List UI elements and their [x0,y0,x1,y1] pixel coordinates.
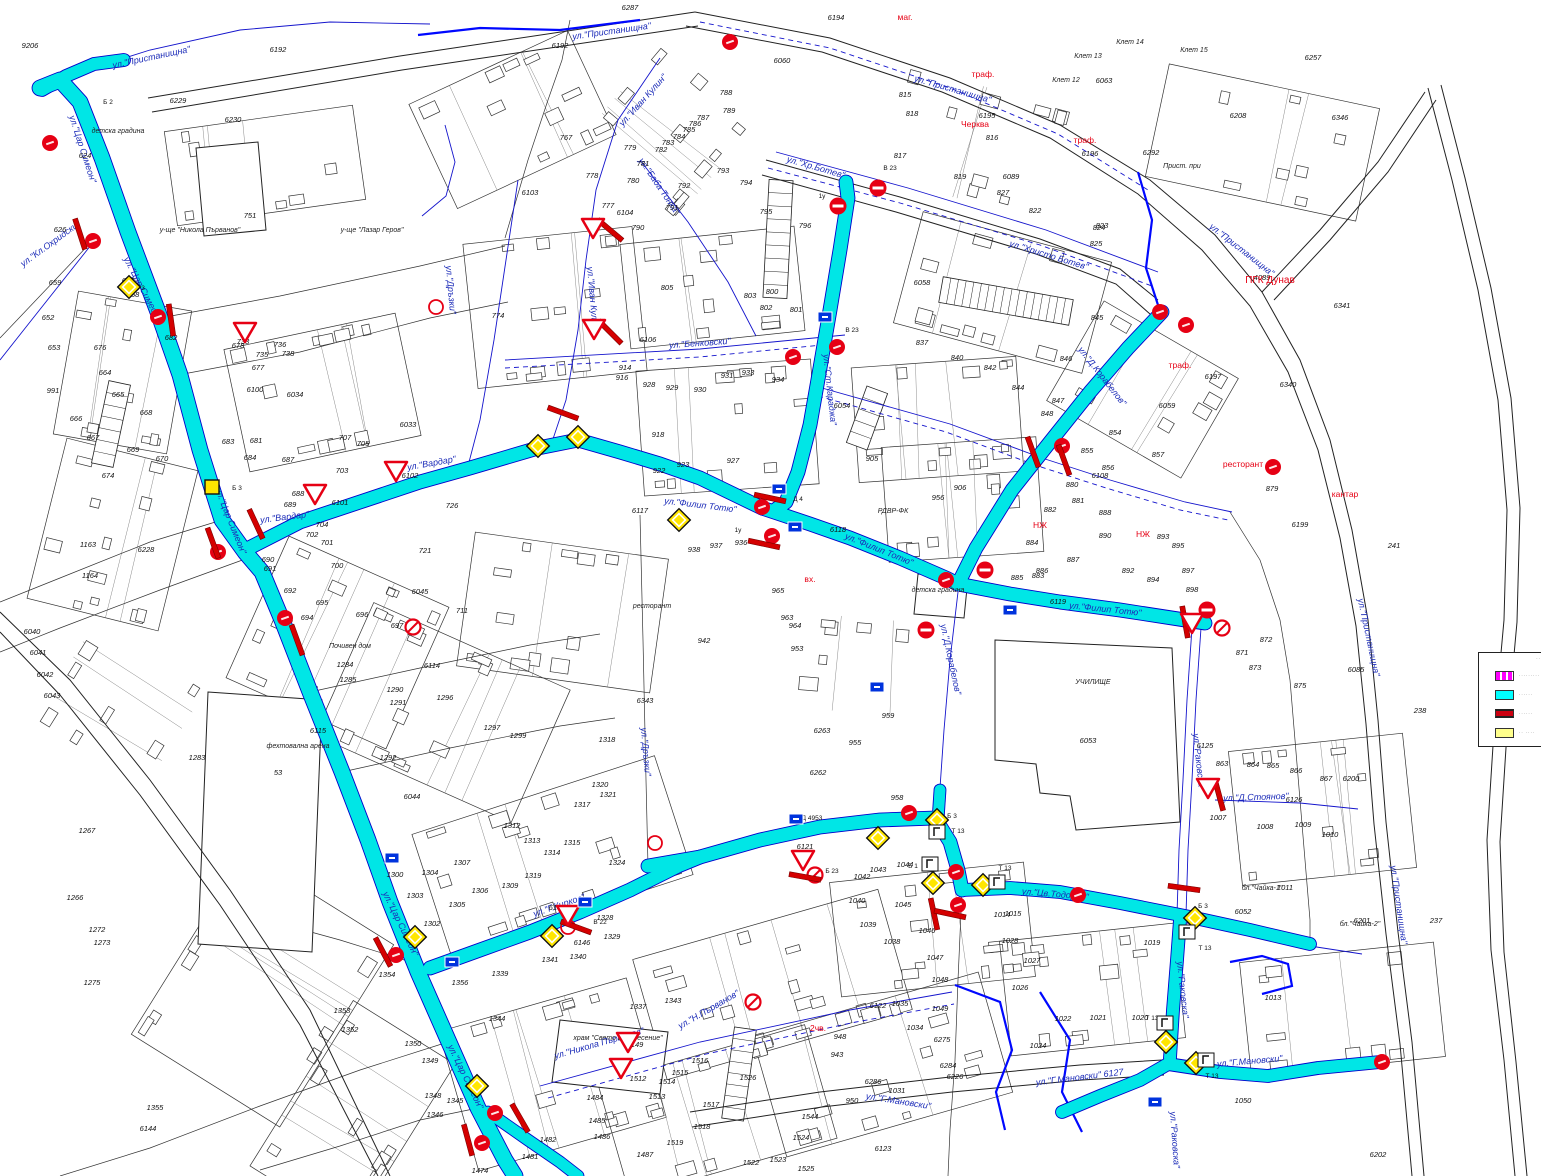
sign-code-label: 1у [735,527,743,534]
parcel-number: 6033 [400,420,418,429]
building-label: Клет 13 [1074,53,1102,60]
traffic-sign-ring [429,300,443,314]
traffic-sign-blue [445,957,459,967]
parcel-number: 780 [627,176,640,185]
building-label: Клет 15 [1180,47,1208,54]
parcel-number: 683 [222,437,235,446]
parcel-number: 1304 [422,868,439,877]
red-annotation: маг. [898,12,913,22]
street-axis [1177,628,1192,915]
parcel-number: 6263 [814,726,832,735]
parcel-number: 6340 [1280,380,1298,389]
parcel-number: 1348 [425,1091,443,1100]
traffic-sign-sq [205,480,219,494]
parcel-number: 818 [906,109,919,118]
parcel-number: 1544 [802,1112,819,1121]
traffic-sign-slash [1215,621,1230,636]
parcel-number: 6346 [1332,113,1350,122]
parcel-number: 1317 [574,800,592,809]
street-label: ул."Христо Ботев" [1007,238,1090,272]
traffic-sign-dot [722,34,738,50]
parcel-number: 1525 [798,1164,816,1173]
sign-code-label: Т 13 [998,865,1011,872]
parcel-number: 1324 [609,858,626,867]
map-legend: ·· ··· ······················· ···· [1478,652,1541,747]
parcel-number: 800 [766,287,779,296]
sign-code-label: Б 23 [825,868,839,875]
legend-swatch-magenta-striped [1495,671,1514,681]
parcel-number: 873 [1249,663,1262,672]
map-viewport[interactable]: ул."Пристанищна"ул."Пристанищна"ул."Прис… [0,0,1541,1176]
building-label: фехтовална арена [266,743,329,750]
traffic-sign-dot [85,233,101,249]
parcel-number: 854 [1109,428,1122,437]
sign-code-label: Б 3 [232,485,242,492]
parcel-number: 1341 [542,955,559,964]
parcel-number: 721 [419,546,432,555]
building-label: Почивен дом [329,642,371,650]
parcel-number: 6043 [44,691,62,700]
sign-code-label: Б 3 [947,813,957,820]
parcel-block [35,623,205,788]
parcel-number: 702 [306,530,319,539]
parcel-number: 936 [735,538,748,547]
parcel-boundary [0,238,95,338]
parcel-number: 929 [666,383,679,392]
traffic-sign-dot [948,864,964,880]
parcel-number: 674 [102,471,115,480]
red-annotation: ресторант [1223,459,1263,469]
traffic-sign-dot [785,349,801,365]
parcel-number: 906 [954,483,967,492]
building-label: детска градина [92,127,145,135]
parcel-number: 942 [698,636,711,645]
parcel-number: 6059 [1159,401,1177,410]
parcel-number: 872 [1260,635,1273,644]
parcel-number: 1526 [740,1073,758,1082]
traffic-sign-noentry [870,180,887,197]
parcel-number: 1302 [424,919,442,928]
parcel-number: 6108 [1092,471,1110,480]
parcel-number: 1512 [630,1074,648,1083]
traffic-sign-blue [1148,1097,1162,1107]
parcel-number: 6275 [934,1035,952,1044]
parcel-number: 931 [721,371,734,380]
traffic-sign-dot [901,805,917,821]
parcel-number: 695 [316,598,329,607]
parcel-number: 670 [156,454,169,463]
parcel-number: 6100 [247,385,265,394]
parcel-number: 930 [694,385,707,394]
parcel-number: 704 [316,520,329,529]
parcel-number: 1313 [524,836,542,845]
parcel-number: 777 [602,201,615,210]
parcel-number: 1524 [793,1133,810,1142]
traffic-sign-blue [772,484,786,494]
sign-code-label: Б 3 [1198,903,1208,910]
parcel-number: 1291 [390,698,407,707]
parcel-number: 1518 [694,1122,712,1131]
parcel-number: 6144 [140,1124,157,1133]
parcel-number: 923 [677,460,690,469]
traffic-sign-box [989,875,1005,889]
legend-title: ·· ··· [1495,656,1541,666]
parcel-number: 6286 [865,1077,883,1086]
traffic-sign-bar [1168,883,1200,892]
parcel-number: 837 [916,338,929,347]
sign-code-label: Т 13 [1198,945,1211,952]
parcel-number: 964 [789,621,802,630]
parcel-number: 665 [112,390,125,399]
parcel-block [797,613,910,717]
parcel-number: 1481 [522,1152,539,1161]
parcel-boundary [342,718,615,772]
parcel-number: 726 [446,501,459,510]
parcel-number: 6106 [640,335,658,344]
traffic-sign-dot [1374,1054,1390,1070]
parcel-number: 1299 [510,731,528,740]
traffic-sign-dot [150,309,166,325]
parcel-number: 881 [1072,496,1085,505]
traffic-sign-slash [406,620,421,635]
traffic-sign-dia [867,827,890,850]
street-axis [1310,946,1362,954]
parcel-number: 819 [954,172,967,181]
parcel-number: 1303 [407,891,425,900]
parcel-boundary [260,1108,478,1170]
cadastral-map-canvas[interactable]: ул."Пристанищна"ул."Пристанищна"ул."Прис… [0,0,1541,1176]
building-label: УЧИЛИЩЕ [1074,679,1110,686]
parcel-number: 792 [678,181,691,190]
parcel-number: 882 [1044,505,1057,514]
utility-line [955,985,1012,1130]
parcel-number: 735 [256,350,269,359]
parcel-number: 6202 [1370,1150,1388,1159]
parcel-number: 816 [986,133,999,142]
parcel-number: 700 [331,561,344,570]
red-annotation: Черква [961,119,989,129]
traffic-sign-ring [648,836,662,850]
parcel-number: 1306 [472,886,490,895]
parcel-number: 796 [799,221,812,230]
traffic-sign-dot [1152,304,1168,320]
parcel-number: 937 [710,541,723,550]
traffic-sign-tri [583,320,605,339]
parcel-number: 6262 [810,768,828,777]
parcel-number: 6053 [1080,736,1098,745]
red-annotation: НЖ [1136,529,1150,539]
parcel-number: 6122 [870,1001,888,1010]
parcel-number: 893 [1157,532,1170,541]
parcel-number: 705 [357,439,370,448]
parcel-number: 1031 [889,1086,906,1095]
parcel-number: 1048 [932,975,950,984]
parcel-number: 791 [666,203,679,212]
parcel-number: 1266 [67,893,85,902]
parcel-number: 943 [831,1050,844,1059]
parcel-number: 6104 [617,208,634,217]
parcel-number: 6121 [797,842,814,851]
traffic-sign-dot [487,1105,503,1121]
parcel-number: 1034 [907,1023,924,1032]
traffic-sign-box [1157,1016,1173,1030]
parcel-number: 1272 [89,925,107,934]
parcel-number: 6229 [170,96,188,105]
parcel-number: 6208 [1230,111,1248,120]
parcel-number: 6226 [947,1072,965,1081]
street-axis [700,22,1148,190]
building-label: Клет 14 [1116,39,1144,46]
parcel-number: 1522 [743,1158,761,1167]
traffic-sign-dot [1070,887,1086,903]
parcel-number: 6118 [830,525,847,534]
building-label: бл."Чайка-1" [1242,884,1283,892]
parcel-number: 6041 [30,648,47,657]
traffic-sign-blue [385,853,399,863]
parcel-number: 6103 [522,188,540,197]
traffic-sign-blue [578,897,592,907]
parcel-number: 793 [717,166,730,175]
parcel-number: 624 [79,151,92,160]
traffic-sign-bar [547,405,579,421]
parcel-number: 1349 [422,1056,440,1065]
parcel-number: 751 [244,211,257,220]
parcel-number: 885 [1011,573,1024,582]
parcel-number: 864 [1247,760,1260,769]
parcel-number: 6125 [1197,741,1215,750]
parcel-block [409,30,616,208]
parcel-number: 1353 [334,1006,352,1015]
parcel-number: 1350 [405,1039,423,1048]
parcel-number: 897 [1182,566,1195,575]
parcel-number: 688 [292,489,305,498]
legend-label: ········· [1519,673,1540,678]
traffic-sign-dot [277,610,293,626]
traffic-sign-box [929,825,945,839]
parcel-number: 863 [1216,759,1229,768]
parcel-number: 847 [1052,396,1065,405]
street-label: ул."Пристанищна" [1388,864,1409,946]
parcel-block [164,105,365,226]
parcel-number: 6287 [622,3,640,12]
parcel-number: 6192 [552,41,570,50]
parcel-number: 1320 [592,780,610,789]
traffic-sign-dot [754,499,770,515]
parcel-number: 6058 [914,278,932,287]
parcel-block [633,889,913,1079]
parcel-number: 701 [321,538,334,547]
parcel-number: 794 [740,178,753,187]
parcel-number: 652 [42,313,55,322]
red-annotation: вх. [804,574,815,584]
legend-label: ·· ···· [1519,730,1535,735]
parcel-number: 707 [339,433,352,442]
parcel-number: 6060 [774,56,792,65]
parcel-number: 6194 [828,13,845,22]
parcel-number: 1515 [672,1068,690,1077]
parcel-number: 668 [140,408,153,417]
traffic-sign-tri [304,485,326,504]
parcel-number: 991 [47,386,60,395]
parcel-number: 6114 [424,661,440,670]
legend-label: ······ [1519,711,1533,716]
parcel-number: 1038 [884,937,902,946]
parcel-number: 1354 [379,970,396,979]
traffic-sign-blue [789,814,803,824]
parcel-number: 1355 [147,1103,165,1112]
parcel-number: 669 [127,445,140,454]
parcel-number: 1482 [540,1135,558,1144]
parcel-number: 6341 [1334,301,1351,310]
traffic-sign-dot [42,135,58,151]
parcel-number: 694 [301,613,314,622]
parcel-number: 803 [744,291,757,300]
street-label: ул."Д.Корабелов" [938,622,963,696]
parcel-number: 958 [891,793,904,802]
traffic-sign-blue [870,682,884,692]
parcel-block [881,437,1044,563]
parcel-number: 687 [282,455,295,464]
parcel-number: 626 [54,225,67,234]
parcel-number: 6292 [1143,148,1161,157]
parcel-number: 684 [244,453,257,462]
traffic-sign-bar [73,218,88,250]
parcel-number: 866 [1290,766,1303,775]
highlighted-street [648,818,935,866]
parcel-number: 1021 [1090,1013,1107,1022]
parcel-boundary [505,20,570,238]
parcel-number: 1485 [589,1116,607,1125]
strip-building [939,277,1074,326]
parcel-number: 1045 [895,900,913,909]
parcel-number: 1523 [770,1155,788,1164]
parcel-number: 1267 [79,826,97,835]
parcel-number: 802 [760,303,773,312]
street-axis [468,180,518,466]
parcel-number: 6230 [225,115,243,124]
parcel-number: 916 [616,373,629,382]
parcel-number: 1321 [600,790,617,799]
road-edge [152,26,698,112]
building-label: детска градина [912,586,965,594]
parcel-number: 6200 [1343,774,1361,783]
traffic-sign-dot [938,572,954,588]
parcel-number: 6052 [1235,907,1253,916]
traffic-sign-box [1179,925,1195,939]
parcel-number: 880 [1066,480,1079,489]
parcel-number: 1315 [564,838,582,847]
utility-line [1138,172,1158,305]
parcel-number: 914 [619,363,632,372]
parcel-number: 1042 [854,872,872,881]
parcel-number: 928 [643,380,656,389]
parcel-number: 767 [560,133,573,142]
sign-code-label: 1у [819,193,827,200]
parcel-number: 1027 [1024,956,1042,965]
traffic-sign-box [922,857,938,871]
legend-swatch-cyan [1495,690,1514,700]
parcel-number: 1010 [1322,830,1340,839]
parcel-number: 1297 [484,723,502,732]
road-edge [1262,92,1425,292]
parcel-number: 892 [1122,566,1135,575]
parcel-number: 865 [1267,761,1280,770]
parcel-number: 692 [284,586,297,595]
parcel-number: 959 [882,711,895,720]
parcel-block [1145,64,1379,221]
parcel-number: 1050 [1235,1096,1253,1105]
parcel-number: 1275 [84,978,102,987]
parcel-number: 666 [70,414,83,423]
parcel-number: 1519 [667,1138,685,1147]
parcel-number: 805 [661,283,674,292]
traffic-sign-dot [950,897,966,913]
large-building [198,692,322,952]
parcel-number: 938 [688,545,701,554]
parcel-number: 955 [849,738,862,747]
parcel-number: 857 [1152,450,1165,459]
parcel-number: 774 [492,311,505,320]
parcel-number: 6117 [632,506,649,515]
legend-item: ·· ···· [1495,723,1541,742]
red-annotation: кантар [1332,489,1359,499]
red-annotation: 2чв. [810,1023,826,1033]
street-label: ул."Ст.Караджа" [821,353,839,427]
building-label: бл."Чайка-2" [1340,920,1381,928]
parcel-number: 1040 [849,896,867,905]
traffic-sign-dot [474,1135,490,1151]
parcel-number: 948 [834,1032,847,1041]
parcel-number: 886 [1036,566,1049,575]
traffic-sign-blue [788,522,802,532]
parcel-number: 238 [1413,706,1427,715]
parcel-number: 1046 [919,926,937,935]
parcel-number: 1318 [599,735,617,744]
parcel-number: 779 [624,143,637,152]
parcel-number: 922 [653,466,666,475]
street-axis [0,240,95,360]
parcel-number: 1337 [630,1002,648,1011]
parcel-number: 6123 [875,1144,893,1153]
parcel-number: 1026 [1012,983,1030,992]
traffic-sign-tri [792,851,814,870]
parcel-number: 1007 [1210,813,1228,822]
street-label: ул."Пристанищна" [111,44,192,71]
parcel-number: 1340 [570,952,588,961]
parcel-number: 953 [791,644,804,653]
parcel-number: 6102 [402,471,420,480]
large-building [552,1020,668,1094]
parcel-number: 1292 [380,753,398,762]
parcel-number: 867 [1320,774,1333,783]
parcel-number: 1028 [1002,936,1020,945]
parcel-number: 1484 [587,1093,604,1102]
parcel-number: 6119 [1050,597,1067,606]
street-axis [422,125,455,216]
parcel-number: 871 [1236,648,1249,657]
parcel-number: 1047 [927,953,945,962]
parcel-number: 787 [697,113,710,122]
parcel-number: 667 [87,433,100,442]
parcel-number: 6101 [332,498,349,507]
parcel-number: 801 [790,305,803,314]
traffic-sign-blue [818,312,832,322]
parcel-number: 738 [282,349,295,358]
traffic-sign-bar [461,1124,474,1156]
parcel-number: 6228 [138,545,156,554]
parcel-number: 1043 [870,865,888,874]
parcel-number: 1300 [387,870,405,879]
